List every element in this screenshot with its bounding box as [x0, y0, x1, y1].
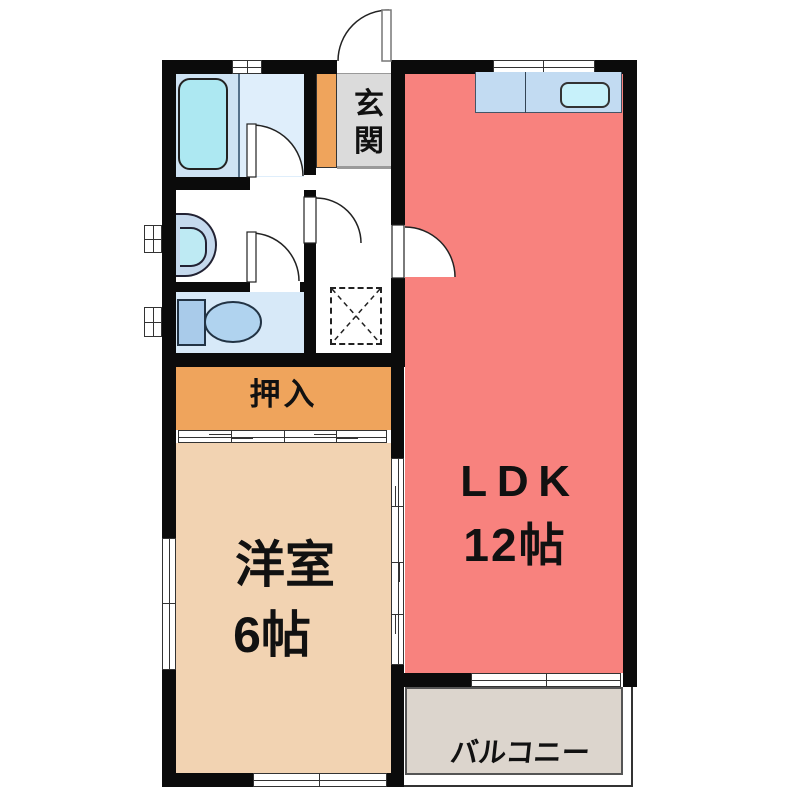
small-window-washroom-left: [144, 225, 162, 253]
wall-mid-horizontal: [162, 353, 405, 367]
wall-hall-ldk: [391, 72, 405, 355]
floorplan: 玄関 押入 LDK 12帖 洋室 6帖 バルコニー: [0, 0, 800, 800]
washing-machine-space: [330, 287, 382, 345]
toilet-room-floor: [176, 292, 304, 353]
oshiire-fusuma-sliding-door: [178, 430, 387, 443]
entrance-door: [338, 10, 391, 61]
balcony-sliding-window: [471, 673, 621, 687]
western-ldk-sliding-partition: [391, 458, 404, 665]
small-window-toilet-left: [144, 307, 162, 337]
ldk-floor: [405, 72, 623, 673]
bathroom-divider-line: [238, 74, 240, 177]
wall-ldk-balcony: [403, 673, 471, 687]
ldk-name: LDK: [420, 458, 620, 506]
ldk-size: 12帖: [415, 520, 615, 571]
western-room-size: 6帖: [172, 608, 372, 663]
bathtub: [178, 78, 228, 170]
washroom-door-opening: [304, 198, 316, 243]
small-window-bathroom-top: [232, 60, 262, 74]
western-room-bottom-window: [253, 773, 387, 787]
bathroom-door-opening: [250, 177, 304, 190]
wall-left: [162, 60, 176, 787]
wall-right: [623, 60, 637, 687]
toilet-door-opening: [250, 282, 300, 292]
genkan-label: 玄関: [351, 86, 387, 160]
corner-opening: [304, 175, 316, 190]
western-room-name: 洋室: [185, 538, 385, 593]
balcony-label: バルコニー: [418, 738, 621, 769]
entrance-opening: [337, 60, 391, 74]
vanity-sink-basin: [180, 227, 207, 267]
bathroom-floor: [238, 74, 304, 177]
kitchen-sink: [560, 82, 610, 108]
oshiire-label: 押入: [176, 378, 391, 412]
ldk-door-opening: [391, 225, 405, 278]
genkan-cabinet: [316, 72, 337, 168]
kitchen-counter-divider: [525, 72, 526, 113]
